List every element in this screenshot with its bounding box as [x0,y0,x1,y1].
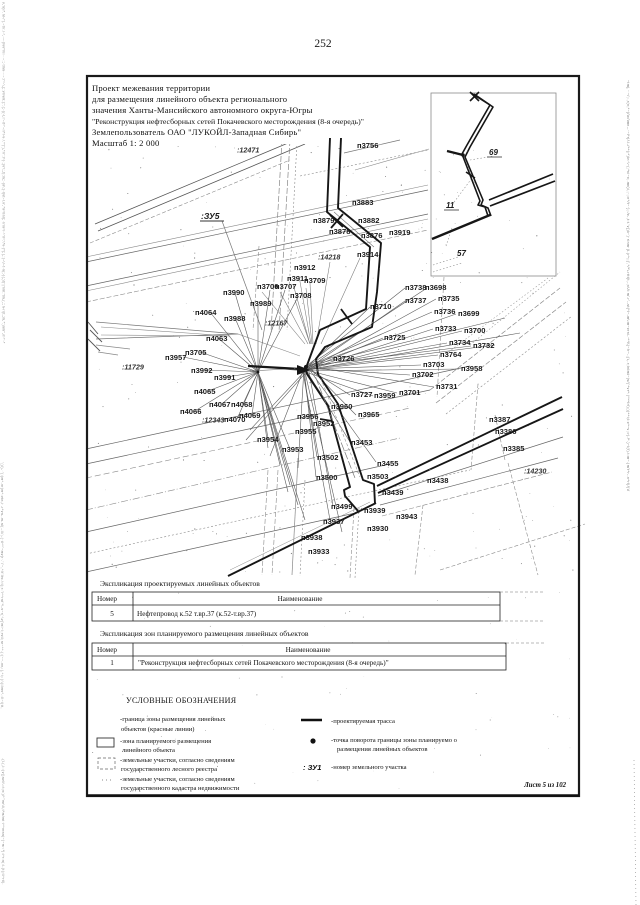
svg-text:п4066: п4066 [180,407,201,416]
svg-text:п3756: п3756 [357,141,378,150]
svg-text:п3734: п3734 [449,338,471,347]
svg-text:-проектируемая трасса: -проектируемая трасса [331,718,395,725]
svg-text:Проект межевания территории: Проект межевания территории [92,83,210,93]
svg-text:5: 5 [110,610,114,618]
svg-text:п3959: п3959 [374,391,395,400]
svg-text:п3731: п3731 [436,382,458,391]
svg-text:п3737: п3737 [405,296,426,305]
svg-text:п3882: п3882 [358,216,379,225]
svg-text:Номер: Номер [97,646,117,654]
svg-text:п3953: п3953 [282,445,303,454]
svg-text:п3957: п3957 [165,353,186,362]
svg-text:п4065: п4065 [194,387,216,396]
svg-text:п3439: п3439 [382,488,403,497]
svg-text:п3930: п3930 [367,524,388,533]
svg-text:п3703: п3703 [423,360,444,369]
svg-text:п3733: п3733 [435,324,456,333]
svg-text:п3710: п3710 [370,302,391,311]
svg-text:для размещения линейного объек: для размещения линейного объекта региона… [92,94,287,104]
svg-text:п3988: п3988 [224,314,245,323]
svg-text:п3914: п3914 [357,250,379,259]
svg-text:Наименование: Наименование [278,595,323,603]
svg-text:п3965: п3965 [358,410,380,419]
svg-text:п3455: п3455 [377,459,399,468]
svg-text:государственного кадастра недв: государственного кадастра недвижимости [121,785,240,792]
svg-text:п3912: п3912 [294,263,315,272]
svg-text:п3732: п3732 [473,341,494,350]
svg-text::12343: :12343 [202,416,224,425]
svg-text::14230: :14230 [524,467,546,476]
svg-text:Лист 5 из 102: Лист 5 из 102 [523,782,566,789]
svg-text:п3879: п3879 [313,216,334,225]
svg-text:п3709: п3709 [304,276,325,285]
svg-text:п3453: п3453 [351,438,372,447]
svg-text:Наименование: Наименование [286,646,331,654]
svg-text:п3764: п3764 [440,350,462,359]
svg-text:п4063: п4063 [206,334,227,343]
svg-text:п3989: п3989 [250,299,271,308]
svg-text:п3385: п3385 [503,444,525,453]
svg-text:линейного объекта: линейного объекта [122,747,175,754]
svg-text:п3990: п3990 [223,288,244,297]
svg-text:п3883: п3883 [352,198,373,207]
svg-text:-точка поворота границы зоны п: -точка поворота границы зоны планируемо … [331,737,458,744]
svg-text:69: 69 [489,148,498,157]
svg-text:"Реконструкция нефтесборных се: "Реконструкция нефтесборных сетей Покаче… [92,117,364,126]
svg-text:-зона планируемого размещения: -зона планируемого размещения [120,738,211,745]
svg-text:~tm|,··~/;:,r(n;*~|/\v/\mn--·~: ~tm|,··~/;:,r(n;*~|/\v/\mn--·~l*r|/.l-/^… [626,80,630,492]
svg-text:п3738: п3738 [405,283,426,292]
svg-text:п3943: п3943 [396,512,417,521]
svg-text:п3698: п3698 [425,283,446,292]
svg-text:: ЗУ1: : ЗУ1 [303,763,321,772]
svg-text:п3919: п3919 [389,228,410,237]
svg-text::ЗУ5: :ЗУ5 [201,211,220,221]
svg-text:.(l.(,\::(v()nv/i\::t;v:)i*''m: .(l.(,\::(v()nv/i\::t;v:)i*''mr\li,t*m/m… [1,758,5,885]
svg-text:п3939: п3939 [364,506,385,515]
svg-text:п3726: п3726 [333,354,354,363]
svg-text:п3933: п3933 [308,547,329,556]
svg-text:п3707: п3707 [275,282,296,291]
svg-text:-граница зоны размещения линей: -граница зоны размещения линейных [120,716,226,723]
svg-text:п3736: п3736 [434,307,455,316]
svg-text:значения Ханты-Мансийского авт: значения Ханты-Мансийского автономного о… [92,105,313,115]
svg-text:п3700: п3700 [464,326,485,335]
svg-text:п3503: п3503 [367,472,388,481]
svg-text:п4069: п4069 [239,411,260,420]
svg-text:';)\)-·'(:|m^-vr)m^:vtn,i·-r*v: ';)\)-·'(:|m^-vr)m^:vtn,i·-r*vn-.m-nl(.-… [0,462,4,709]
svg-text::12167: :12167 [265,319,288,328]
svg-text:п3955: п3955 [295,427,317,436]
svg-text:п3878: п3878 [329,227,350,236]
svg-text:п3387: п3387 [489,415,510,424]
svg-text:п4068: п4068 [231,400,252,409]
svg-text:Экспликация проектируемых лине: Экспликация проектируемых линейных объек… [100,579,260,588]
svg-text:1: 1 [110,659,114,667]
svg-text:Номер: Номер [97,595,117,603]
svg-text:п3438: п3438 [427,476,448,485]
svg-text:Нефтепровод к.52 т.вр.37 (к.52: Нефтепровод к.52 т.вр.37 (к.52-т.вр.37) [137,610,257,618]
svg-text:п3992: п3992 [191,366,212,375]
svg-text:п3958: п3958 [461,364,482,373]
svg-text:п3735: п3735 [438,294,460,303]
svg-text:размещения линейных объектов: размещения линейных объектов [337,746,427,753]
svg-text:-номер земельного участка: -номер земельного участка [331,764,407,771]
svg-text:Землепользователь ОАО "ЛУКОЙЛ-: Землепользователь ОАО "ЛУКОЙЛ-Западная С… [92,127,301,137]
svg-text:п3991: п3991 [214,373,236,382]
svg-text::14218: :14218 [318,253,340,262]
svg-text:п4067: п4067 [209,400,230,409]
svg-text:п3386: п3386 [495,427,516,436]
svg-text:252: 252 [314,38,332,50]
svg-text:государственного лесного реест: государственного лесного реестра [121,766,217,773]
svg-text:п3702: п3702 [412,370,433,379]
svg-text:УСЛОВНЫЕ ОБОЗНАЧЕНИЯ: УСЛОВНЫЕ ОБОЗНАЧЕНИЯ [126,696,237,705]
svg-text:v,'n)i*.nl-/'(.~t/r.i·^,-~-|\v: v,'n)i*.nl-/'(.~t/r.i·^,-~-|\vv*\\ii··--… [2,2,6,344]
svg-text:п3699: п3699 [458,309,479,318]
svg-text:п3701: п3701 [399,388,421,397]
svg-text:п3954: п3954 [257,435,279,444]
svg-text::11729: :11729 [122,363,144,372]
svg-text:Экспликация зон планируемого р: Экспликация зон планируемого размещения … [100,629,309,638]
svg-text:п3876: п3876 [361,231,382,240]
svg-text:п3502: п3502 [317,453,338,462]
svg-text::12471: :12471 [237,146,259,155]
svg-text:п3499: п3499 [331,502,352,511]
svg-text:п3727: п3727 [351,390,372,399]
svg-text:Масштаб 1: 2 000: Масштаб 1: 2 000 [92,138,159,148]
svg-text:п3705: п3705 [185,348,207,357]
svg-text:объектов (красные линии): объектов (красные линии) [121,726,194,733]
svg-text:п3500: п3500 [316,473,337,482]
svg-text:п4064: п4064 [195,308,217,317]
svg-text:п3708: п3708 [290,291,311,300]
svg-text:п3960: п3960 [331,402,352,411]
svg-text:"Реконструкция нефтесборных се: "Реконструкция нефтесборных сетей Покаче… [138,659,389,667]
svg-text:п3937: п3937 [323,517,344,526]
svg-text:57: 57 [457,249,466,258]
svg-text:п3938: п3938 [301,533,322,542]
svg-text:-земельные участки, согласно с: -земельные участки, согласно сведениям [120,776,235,783]
svg-text:11: 11 [446,201,455,210]
svg-text:-земельные участки, согласно с: -земельные участки, согласно сведениям [120,757,235,764]
